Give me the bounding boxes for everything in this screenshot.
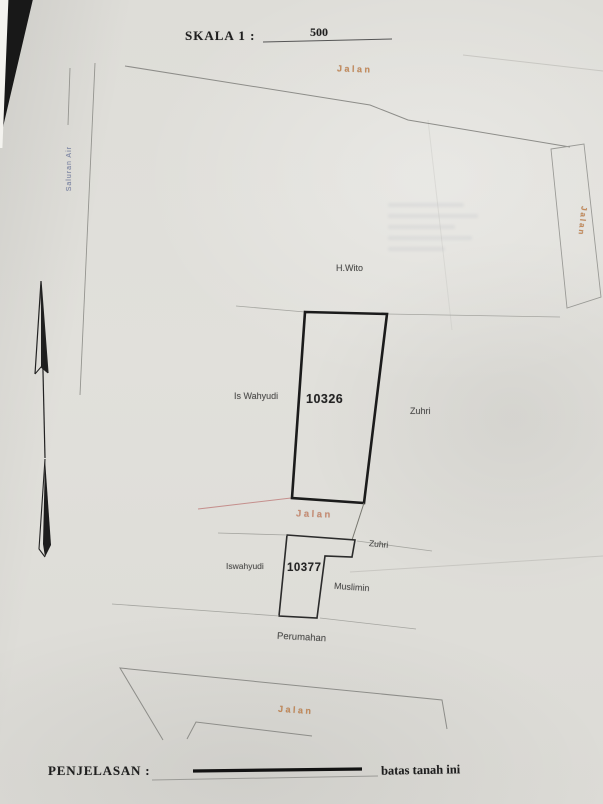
- plot-connector-line: [352, 503, 364, 540]
- road-label-middle: Jalan: [296, 508, 333, 520]
- neighbor-label-hwito: H.Wito: [336, 263, 363, 273]
- plot-10326-boundary: [292, 312, 387, 503]
- north-arrow: [35, 281, 51, 557]
- neighbor-label-zuhri-east: Zuhri: [410, 406, 431, 416]
- neighbor-label-zuhri-northeast: Zuhri: [369, 538, 389, 550]
- legend-title: PENJELASAN :: [48, 763, 150, 779]
- scale-value: 500: [310, 25, 328, 40]
- pink-boundary-line: [198, 498, 291, 509]
- top-road-line: [125, 66, 570, 147]
- right-road-outline: [551, 144, 601, 308]
- scale-label: SKALA 1 :: [185, 28, 255, 44]
- plot1-extension-lines: [236, 306, 560, 317]
- plot-10377-number: 10377: [287, 562, 321, 574]
- waterway-label: Saluran Air: [66, 146, 73, 191]
- waterway-lines: [68, 63, 95, 395]
- plot-10326-number: 10326: [306, 392, 343, 406]
- legend-boundary-sample: [193, 769, 362, 771]
- legend-underline: [152, 776, 378, 780]
- neighbor-label-iswahyudi2: Iswahyudi: [226, 561, 264, 571]
- neighbor-label-iswahyudi: Is Wahyudi: [234, 391, 278, 401]
- plot-10377-boundary: [279, 535, 355, 618]
- road-label-top: Jalan: [337, 63, 373, 74]
- sketch-linework: [0, 0, 603, 804]
- scanned-land-sketch: SKALA 1 : 500 Jalan Jalan Saluran Air H.…: [0, 0, 603, 804]
- legend-boundary-label: batas tanah ini: [381, 762, 460, 778]
